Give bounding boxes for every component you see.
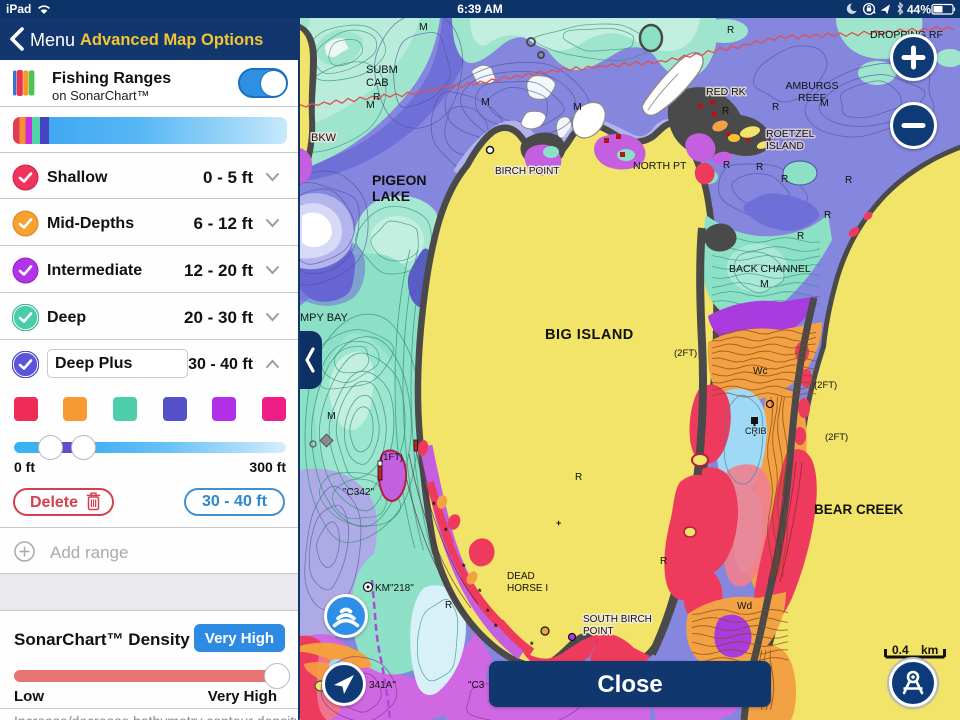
svg-text:R: R: [445, 600, 452, 611]
svg-text:"C342": "C342": [343, 487, 374, 498]
svg-text:R: R: [781, 174, 788, 185]
svg-text:HORSE I: HORSE I: [507, 583, 548, 594]
svg-text:POINT: POINT: [583, 626, 614, 637]
svg-text:M: M: [573, 101, 582, 113]
svg-text:AMBURGS: AMBURGS: [785, 80, 838, 92]
svg-text:CRIB: CRIB: [745, 426, 767, 436]
svg-text:*: *: [478, 587, 482, 597]
svg-text:SOUTH BIRCH: SOUTH BIRCH: [583, 614, 652, 625]
svg-text:R: R: [845, 175, 852, 186]
svg-text:M: M: [481, 96, 490, 108]
svg-text:R: R: [722, 106, 729, 117]
svg-text:*: *: [530, 640, 534, 650]
svg-text:ISLAND: ISLAND: [766, 140, 804, 152]
svg-text:BACK CHANNEL: BACK CHANNEL: [729, 263, 811, 275]
svg-text:LAKE: LAKE: [372, 188, 410, 204]
svg-text:R: R: [797, 231, 804, 242]
svg-text:M: M: [760, 278, 769, 290]
svg-text:*: *: [494, 622, 498, 632]
svg-text:PIGEON: PIGEON: [372, 172, 426, 188]
svg-text:M: M: [820, 97, 829, 109]
svg-text:KM"218": KM"218": [375, 583, 414, 594]
svg-text:DEAD: DEAD: [507, 571, 535, 582]
svg-text:R: R: [660, 556, 667, 567]
svg-text:ROETZEL: ROETZEL: [766, 128, 815, 140]
svg-text:*: *: [432, 500, 436, 510]
svg-text:(2FT): (2FT): [674, 348, 697, 359]
svg-text:R: R: [756, 162, 763, 173]
svg-text:NORTH PT: NORTH PT: [633, 160, 687, 172]
svg-text:*: *: [462, 562, 466, 572]
svg-text:RED RK: RED RK: [706, 86, 746, 98]
svg-text:M: M: [419, 21, 428, 33]
svg-text:SUBM: SUBM: [366, 64, 398, 76]
svg-text:BKW: BKW: [311, 132, 337, 144]
svg-text:44%: 44%: [907, 3, 931, 17]
svg-text:M: M: [327, 410, 336, 422]
svg-text:CAB: CAB: [366, 77, 389, 89]
svg-text:R: R: [772, 102, 779, 113]
svg-text:*: *: [486, 607, 490, 617]
svg-text:341A": 341A": [369, 680, 396, 691]
svg-text:*: *: [444, 526, 448, 536]
svg-text:BIG ISLAND: BIG ISLAND: [545, 327, 634, 343]
svg-text:"C3: "C3: [468, 680, 485, 691]
svg-text:R: R: [373, 92, 380, 103]
svg-text:Wc: Wc: [753, 366, 767, 377]
svg-text:(1FT): (1FT): [380, 452, 403, 463]
svg-text:(2FT): (2FT): [814, 380, 837, 391]
svg-text:R: R: [575, 472, 582, 483]
svg-text:R: R: [824, 210, 831, 221]
svg-text:Wd: Wd: [737, 601, 752, 612]
svg-text:+: +: [556, 518, 561, 528]
svg-text:(2FT): (2FT): [825, 432, 848, 443]
svg-text:BIRCH POINT: BIRCH POINT: [495, 166, 559, 177]
svg-text:R: R: [727, 25, 734, 36]
svg-text:MPY BAY: MPY BAY: [300, 312, 349, 324]
svg-text:BEAR CREEK: BEAR CREEK: [814, 502, 904, 517]
svg-text:R: R: [723, 160, 730, 171]
